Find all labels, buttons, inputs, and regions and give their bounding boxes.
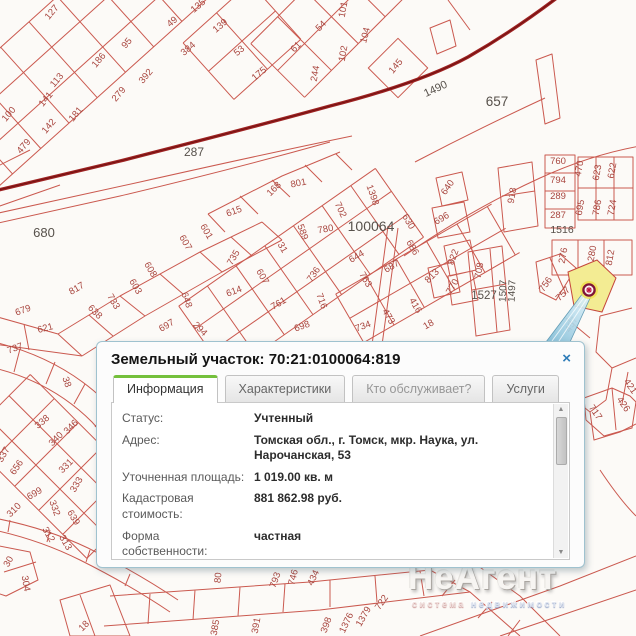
parcel-number: 603 — [126, 277, 143, 296]
parcel-number: 717 — [586, 403, 604, 422]
parcel-number: 734 — [354, 319, 373, 335]
scrollbar[interactable]: ▲ ▼ — [553, 404, 568, 558]
parcel-number: 679 — [14, 303, 33, 319]
parcel-number: 53 — [232, 43, 247, 58]
block-number: 287 — [184, 145, 204, 159]
popup-tabbar: Информация Характеристики Кто обслуживае… — [113, 375, 570, 402]
parcel-number: 142 — [40, 117, 59, 136]
scroll-up-icon[interactable]: ▲ — [554, 406, 568, 413]
parcel-number: 687 — [382, 258, 401, 275]
parcel-number: 656 — [8, 458, 26, 477]
parcel-number: 822 — [446, 248, 462, 267]
parcel-number: 812 — [604, 249, 618, 267]
parcel-number: 621 — [36, 321, 54, 336]
callout-pointer — [546, 293, 591, 342]
parcel-number: 644 — [347, 248, 366, 265]
parcel-number: 181 — [67, 105, 86, 124]
tab-services[interactable]: Услуги — [492, 375, 558, 402]
cadastral-map-app: 1271354938495186392279113141100181142479… — [0, 0, 636, 636]
parcel-number: 473 — [379, 307, 396, 326]
parcel-number: 294 — [190, 320, 209, 339]
parcel-number: 332 — [46, 499, 62, 518]
parcel-number: 244 — [309, 65, 323, 83]
field-value: Томская обл., г. Томск, мкр. Наука, ул. … — [254, 433, 543, 464]
parcel-number: 426 — [614, 395, 632, 414]
info-row-address: Адрес: Томская обл., г. Томск, мкр. Наук… — [122, 433, 543, 464]
parcel-number: 697 — [157, 317, 176, 334]
parcel-number: 601 — [197, 222, 214, 241]
parcel-number: 392 — [137, 67, 156, 86]
parcel-number: 416 — [406, 296, 423, 315]
popup-header: Земельный участок: 70:21:0100064:819 × — [97, 342, 584, 373]
close-icon[interactable]: × — [562, 351, 571, 366]
parcel-number: 304 — [19, 575, 33, 593]
parcel-number: 434 — [305, 568, 322, 587]
parcel-number: 398 — [319, 616, 335, 635]
parcel-number: 733 — [104, 292, 121, 311]
parcel-number: 287 — [550, 210, 566, 221]
parcel-number: 337 — [0, 445, 13, 464]
parcel-number: 186 — [90, 51, 109, 70]
parcel-number: 289 — [550, 191, 566, 202]
parcel-number: 746 — [286, 568, 301, 586]
parcel-number: 640 — [439, 178, 457, 197]
parcel-number: 817 — [67, 280, 86, 297]
parcel-info-popup: Земельный участок: 70:21:0100064:819 × И… — [96, 341, 585, 568]
field-label: Форма собственности: — [122, 529, 254, 560]
parcel-number: 761 — [269, 295, 288, 312]
parcel-number: 479 — [15, 137, 34, 156]
parcel-number: 38 — [59, 375, 73, 389]
parcel-number: 61 — [289, 40, 304, 55]
parcel-number: 639 — [64, 508, 81, 527]
field-value: частная — [254, 529, 301, 560]
parcel-number: 794 — [550, 175, 566, 186]
parcel-number: 80 — [213, 572, 225, 583]
parcel-number: 589 — [294, 223, 310, 242]
parcel-number: 279 — [110, 85, 129, 104]
parcel-number: 30 — [1, 554, 16, 569]
parcel-number: 95 — [119, 36, 134, 51]
parcel-number: 168 — [265, 180, 284, 199]
block-number: 657 — [486, 94, 509, 109]
tab-characteristics[interactable]: Характеристики — [225, 375, 346, 402]
parcel-number: 770 — [444, 277, 461, 296]
parcel-number: 104 — [358, 26, 373, 44]
parcel-number: 724 — [606, 199, 620, 217]
info-row-status: Статус: Учтенный — [122, 411, 543, 427]
field-label: Адрес: — [122, 433, 254, 464]
scrollbar-thumb[interactable] — [556, 417, 567, 465]
parcel-number: 1398 — [364, 183, 382, 207]
parcel-number: 737 — [6, 341, 25, 357]
parcel-number: 786 — [591, 199, 605, 217]
parcel-number: 708 — [473, 262, 487, 280]
tab-who-serves[interactable]: Кто обслуживает? — [352, 375, 485, 402]
road-line — [0, 0, 562, 191]
parcel-number: 1379 — [354, 605, 374, 629]
field-value: 1 019.00 кв. м — [254, 470, 333, 486]
parcel-number: 760 — [550, 156, 566, 167]
scroll-down-icon[interactable]: ▼ — [554, 549, 568, 556]
parcel-number: 102 — [337, 45, 351, 63]
parcel-number: 793 — [268, 571, 284, 590]
parcel-number: 310 — [5, 501, 24, 520]
block-number: 1527 — [471, 290, 497, 302]
info-row-area: Уточненная площадь: 1 019.00 кв. м — [122, 470, 543, 486]
parcel-number: 695 — [574, 199, 588, 217]
parcel-number: 757 — [554, 285, 573, 304]
block-number: 1490 — [422, 79, 449, 100]
popup-tab-content: Статус: Учтенный Адрес: Томская обл., г.… — [111, 402, 570, 560]
info-row-ownership: Форма собственности: частная — [122, 529, 543, 560]
info-row-cadastral-value: Кадастровая стоимость: 881 862.98 руб. — [122, 491, 543, 522]
block-number: 1497 — [507, 279, 519, 302]
parcel-number: 698 — [293, 319, 312, 335]
block-number: 680 — [33, 225, 55, 240]
parcel-number: 630 — [399, 212, 416, 231]
parcel-number: 385 — [209, 619, 223, 636]
parcel-number: 139 — [211, 17, 230, 36]
parcel-number: 338 — [33, 413, 52, 432]
parcel-number: 127 — [43, 3, 62, 22]
parcel-number: 699 — [25, 485, 44, 502]
field-label: Статус: — [122, 411, 254, 427]
parcel-number: 702 — [332, 200, 349, 219]
parcel-number: 648 — [178, 291, 194, 310]
parcel-number: 145 — [387, 57, 406, 76]
field-value: 881 862.98 руб. — [254, 491, 342, 522]
parcel-number: 101 — [337, 1, 351, 19]
parcel-number: 813 — [423, 267, 442, 286]
parcel-number: 623 — [591, 164, 605, 182]
parcel-number: 638 — [85, 303, 104, 322]
parcel-number: 615 — [225, 204, 244, 220]
parcel-number: 346 — [62, 418, 81, 437]
field-label: Кадастровая стоимость: — [122, 491, 254, 522]
location-marker-icon[interactable] — [580, 281, 598, 299]
parcel-number: 736 — [305, 265, 323, 284]
parcel-number: 780 — [317, 223, 335, 237]
block-number: 100064 — [348, 218, 395, 234]
parcel-number: 918 — [506, 187, 520, 205]
parcel-number: 313 — [56, 533, 73, 552]
tab-information[interactable]: Информация — [113, 375, 218, 403]
parcel-number: 696 — [432, 210, 451, 227]
parcel-number: 716 — [313, 292, 329, 311]
parcel-number: 801 — [290, 177, 308, 191]
parcel-number: 607 — [253, 267, 270, 286]
parcel-number: 391 — [250, 617, 264, 635]
parcel-number: 113 — [48, 71, 66, 90]
parcel-number: 722 — [373, 593, 391, 612]
parcel-number: 470 — [573, 160, 587, 178]
block-number: 1516 — [550, 224, 574, 236]
popup-title: Земельный участок: 70:21:0100064:819 — [111, 351, 400, 368]
parcel-number: 18 — [421, 317, 436, 332]
parcel-number: 622 — [606, 162, 620, 180]
parcel-number: 735 — [225, 248, 242, 267]
field-label: Уточненная площадь: — [122, 470, 254, 486]
parcel-number: 340 — [47, 430, 66, 449]
parcel-number: 312 — [39, 525, 56, 544]
field-value: Учтенный — [254, 411, 313, 427]
parcel-number: 607 — [176, 233, 193, 252]
